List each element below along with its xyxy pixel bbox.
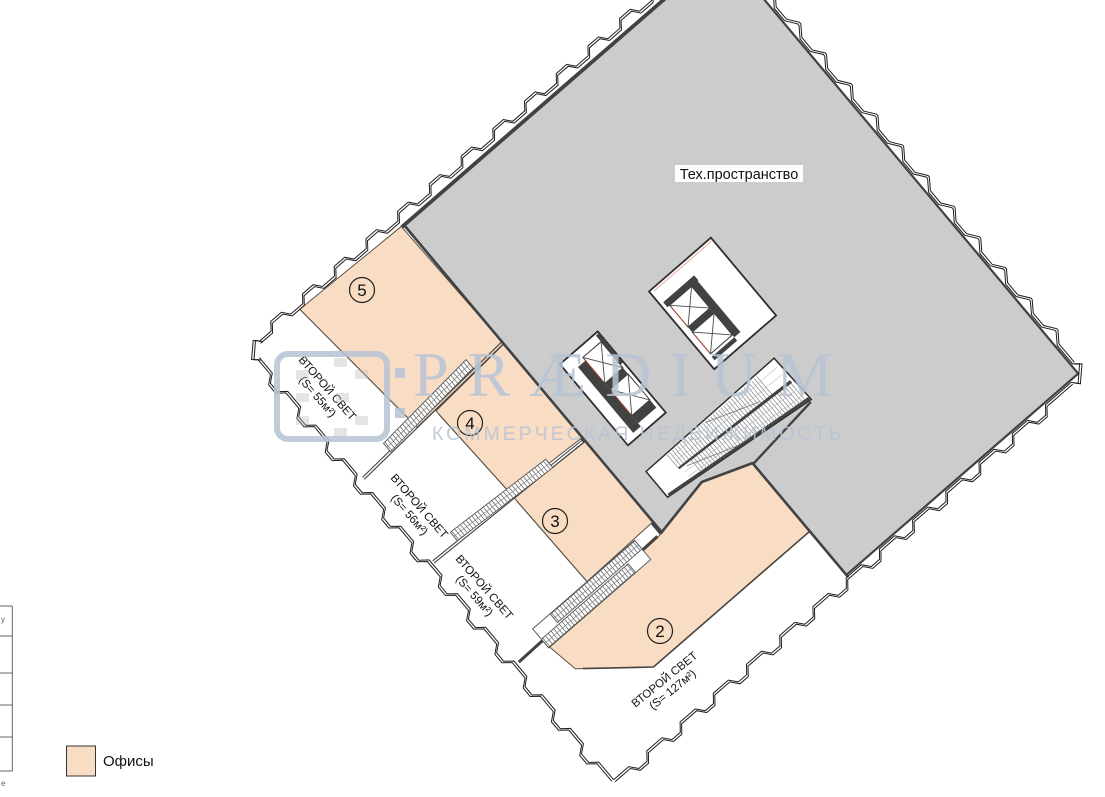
svg-text:2: 2 — [655, 622, 664, 641]
svg-text:КОММЕРЧЕСКАЯ НЕДВИЖИМОСТЬ: КОММЕРЧЕСКАЯ НЕДВИЖИМОСТЬ — [432, 423, 845, 445]
svg-text:PRÆDIUM: PRÆDIUM — [413, 339, 852, 410]
svg-text:е: е — [1, 779, 6, 788]
svg-text:Офисы: Офисы — [103, 753, 154, 770]
svg-text:5: 5 — [357, 281, 366, 300]
svg-text:3: 3 — [550, 512, 559, 531]
svg-text:у: у — [1, 615, 5, 624]
svg-text:Тех.пространство: Тех.пространство — [680, 167, 799, 183]
